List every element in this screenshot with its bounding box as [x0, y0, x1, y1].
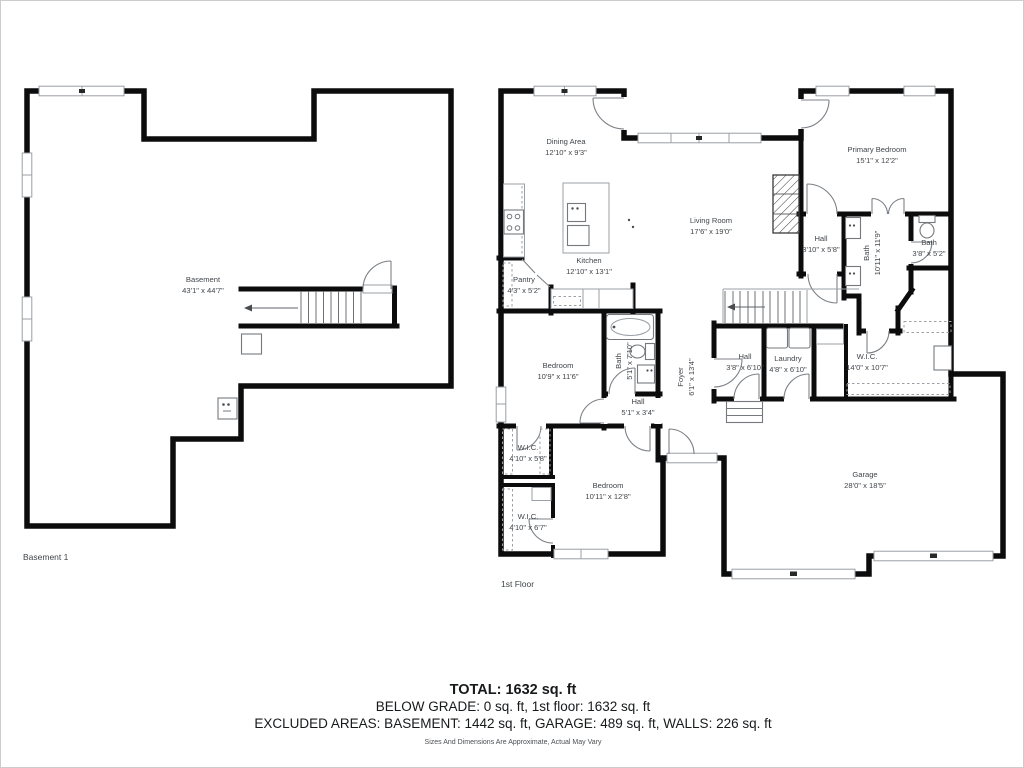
fireplace [773, 175, 799, 233]
sink [846, 267, 861, 286]
garage-steps [727, 402, 763, 423]
svg-text:3'8" x 5'2": 3'8" x 5'2" [912, 249, 946, 258]
washer [767, 328, 788, 348]
svg-text:14'0" x 10'7": 14'0" x 10'7" [846, 363, 888, 372]
svg-text:12'10" x 9'3": 12'10" x 9'3" [545, 148, 587, 157]
svg-text:Basement: Basement [186, 275, 221, 284]
utility-sink [218, 398, 237, 419]
svg-text:6'1" x 13'4": 6'1" x 13'4" [687, 358, 696, 396]
floorplan-drawing: Basement43'1" x 44'7" [1, 1, 1024, 768]
sink [638, 365, 655, 383]
bathtub [607, 315, 654, 340]
sink [846, 218, 861, 239]
svg-text:Bath: Bath [921, 238, 937, 247]
svg-text:Living Room: Living Room [690, 216, 732, 225]
svg-text:4'10" x 6'7": 4'10" x 6'7" [509, 523, 547, 532]
basement-outer-walls [27, 91, 451, 526]
svg-text:3'10" x 5'8": 3'10" x 5'8" [802, 245, 840, 254]
svg-text:Pantry: Pantry [513, 275, 535, 284]
basement-floorplan: Basement43'1" x 44'7" [22, 86, 451, 526]
svg-text:Bath: Bath [614, 353, 623, 369]
svg-text:Bedroom: Bedroom [593, 481, 624, 490]
svg-text:W.I.C.: W.I.C. [518, 512, 539, 521]
total-area-text: TOTAL: 1632 sq. ft [1, 682, 1024, 698]
svg-text:3'8" x 6'10": 3'8" x 6'10" [726, 363, 764, 372]
ceiling-marker [628, 219, 630, 221]
svg-text:Hall: Hall [738, 352, 751, 361]
svg-text:28'0" x 18'5": 28'0" x 18'5" [844, 481, 886, 490]
toilet [919, 216, 935, 239]
svg-text:Bedroom: Bedroom [543, 361, 574, 370]
svg-text:Dining Area: Dining Area [546, 137, 586, 146]
svg-text:Garage: Garage [852, 470, 877, 479]
svg-text:Primary Bedroom: Primary Bedroom [847, 145, 906, 154]
svg-text:Bath: Bath [862, 245, 871, 261]
svg-text:43'1" x 44'7": 43'1" x 44'7" [182, 286, 224, 295]
svg-text:W.I.C.: W.I.C. [518, 443, 539, 452]
svg-text:4'3" x 5'2": 4'3" x 5'2" [507, 286, 541, 295]
floorplan-page: Basement43'1" x 44'7" [0, 0, 1024, 768]
svg-text:Kitchen: Kitchen [576, 256, 601, 265]
svg-text:12'10" x 13'1": 12'10" x 13'1" [566, 267, 612, 276]
svg-text:5'1" x 3'4": 5'1" x 3'4" [621, 408, 655, 417]
basement-caption: Basement 1 [23, 552, 68, 562]
area-summary: TOTAL: 1632 sq. ft BELOW GRADE: 0 sq. ft… [1, 682, 1024, 746]
first-floor-caption: 1st Floor [501, 579, 534, 589]
front-door-threshold [667, 453, 717, 463]
svg-text:5'1" x 7'10": 5'1" x 7'10" [625, 342, 634, 380]
support-post [242, 334, 262, 354]
svg-text:Hall: Hall [631, 397, 644, 406]
svg-text:Hall: Hall [814, 234, 827, 243]
svg-text:15'1" x 12'2": 15'1" x 12'2" [856, 156, 898, 165]
svg-text:17'6" x 19'0": 17'6" x 19'0" [690, 227, 732, 236]
stove [504, 210, 524, 234]
disclaimer-text: Sizes And Dimensions Are Approximate, Ac… [1, 739, 1024, 746]
wic-builtin [934, 346, 952, 370]
svg-text:4'8" x 6'10": 4'8" x 6'10" [769, 365, 807, 374]
svg-text:Foyer: Foyer [676, 367, 685, 387]
kitchen-counter [551, 289, 633, 309]
svg-text:Laundry: Laundry [774, 354, 802, 363]
ceiling-marker [632, 226, 634, 228]
first-floor-floorplan: Dining Area12'10" x 9'3"Kitchen12'10" x … [496, 86, 1003, 579]
svg-text:W.I.C.: W.I.C. [857, 352, 878, 361]
svg-text:10'11" x 11'9": 10'11" x 11'9" [873, 230, 882, 275]
svg-text:10'9" x 11'6": 10'9" x 11'6" [537, 372, 578, 381]
svg-text:4'10" x 5'8": 4'10" x 5'8" [509, 454, 547, 463]
dryer [789, 328, 810, 348]
excluded-areas-text: EXCLUDED AREAS: BASEMENT: 1442 sq. ft, G… [1, 716, 1024, 733]
below-grade-text: BELOW GRADE: 0 sq. ft, 1st floor: 1632 s… [1, 699, 1024, 716]
svg-text:10'11" x 12'8": 10'11" x 12'8" [585, 492, 631, 501]
